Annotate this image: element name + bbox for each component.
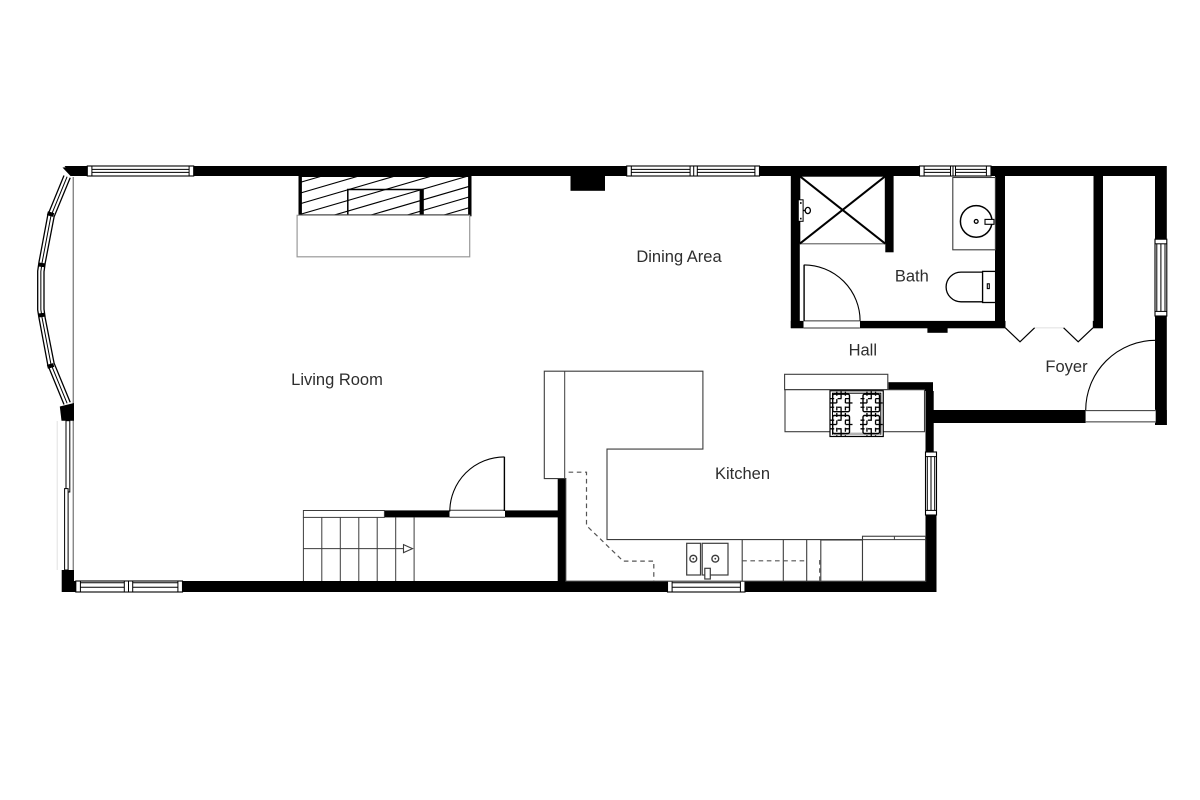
svg-text:Dining Area: Dining Area xyxy=(636,248,722,266)
svg-text:Hall: Hall xyxy=(849,342,877,360)
svg-text:Foyer: Foyer xyxy=(1045,358,1088,376)
svg-text:Kitchen: Kitchen xyxy=(715,465,770,483)
svg-text:Living Room: Living Room xyxy=(291,371,383,389)
svg-text:Bath: Bath xyxy=(895,267,929,285)
